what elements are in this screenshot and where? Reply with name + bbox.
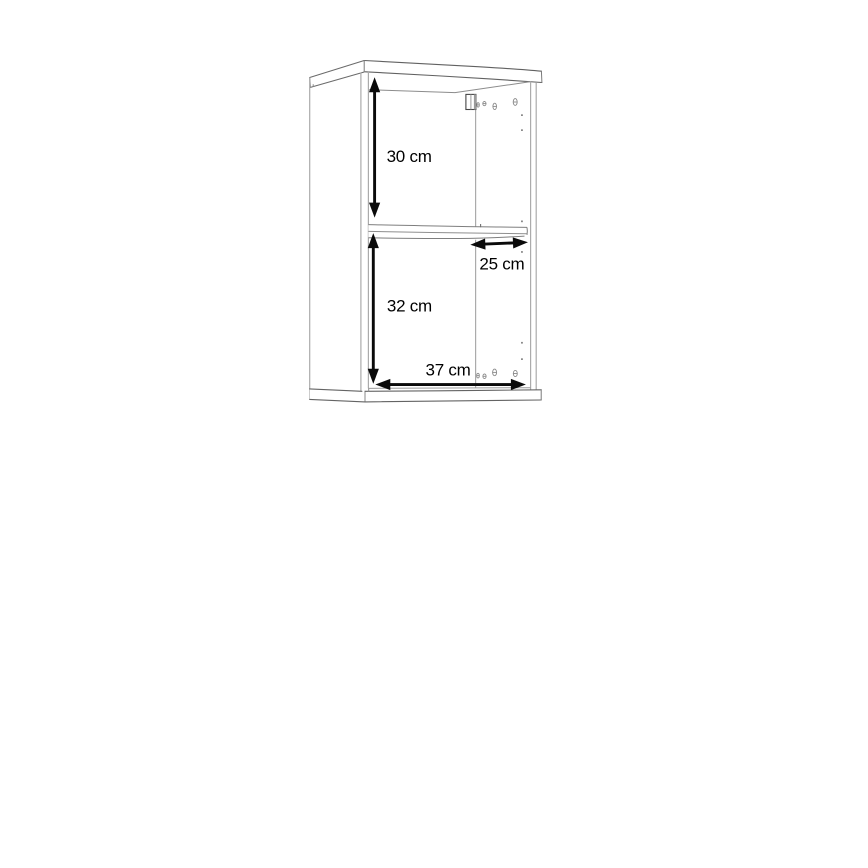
svg-text:37 cm: 37 cm — [426, 361, 471, 380]
svg-text:25 cm: 25 cm — [479, 254, 524, 273]
svg-text:32 cm: 32 cm — [387, 296, 432, 315]
svg-text:30 cm: 30 cm — [387, 147, 432, 166]
